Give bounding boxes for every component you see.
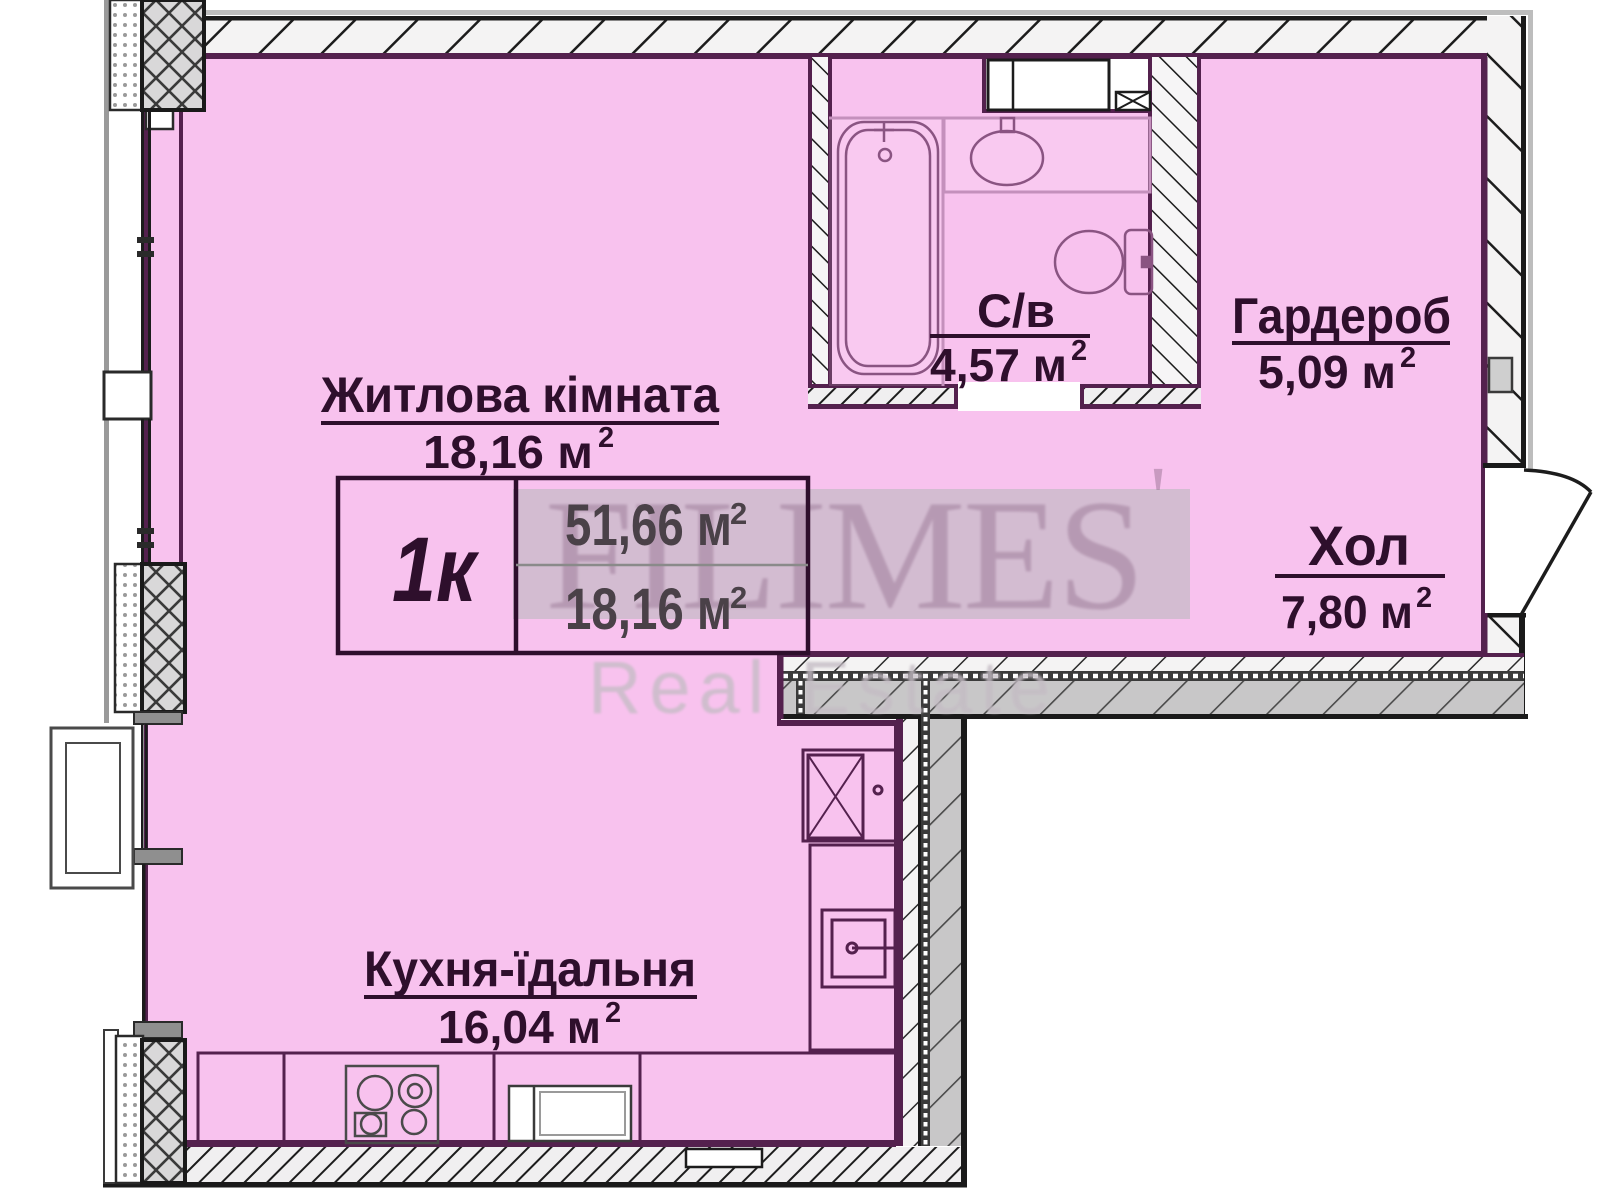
svg-text:Хол: Хол [1308,514,1410,577]
svg-text:2: 2 [1416,582,1432,614]
svg-text:2: 2 [605,997,621,1029]
svg-text:Житлова кімната: Житлова кімната [320,367,720,423]
svg-text:51,66 м: 51,66 м [565,493,732,558]
svg-text:18,16 м: 18,16 м [565,577,732,642]
svg-text:16,04 м: 16,04 м [438,1001,601,1053]
svg-text:4,57 м: 4,57 м [930,339,1067,391]
svg-text:2: 2 [1400,342,1416,374]
svg-text:': ' [1150,449,1166,548]
svg-text:С/в: С/в [977,284,1055,337]
svg-text:Гардероб: Гардероб [1232,288,1451,344]
svg-text:2: 2 [1071,335,1087,367]
svg-text:5,09 м: 5,09 м [1258,346,1396,398]
svg-text:7,80 м: 7,80 м [1281,586,1413,638]
svg-text:2: 2 [598,422,614,454]
svg-text:1к: 1к [392,519,480,621]
svg-text:18,16 м: 18,16 м [423,426,593,478]
svg-text:2: 2 [730,580,747,615]
svg-text:Кухня-їдальня: Кухня-їдальня [364,941,696,997]
svg-text:2: 2 [730,496,747,531]
svg-text:Real Estate: Real Estate [588,646,1050,729]
